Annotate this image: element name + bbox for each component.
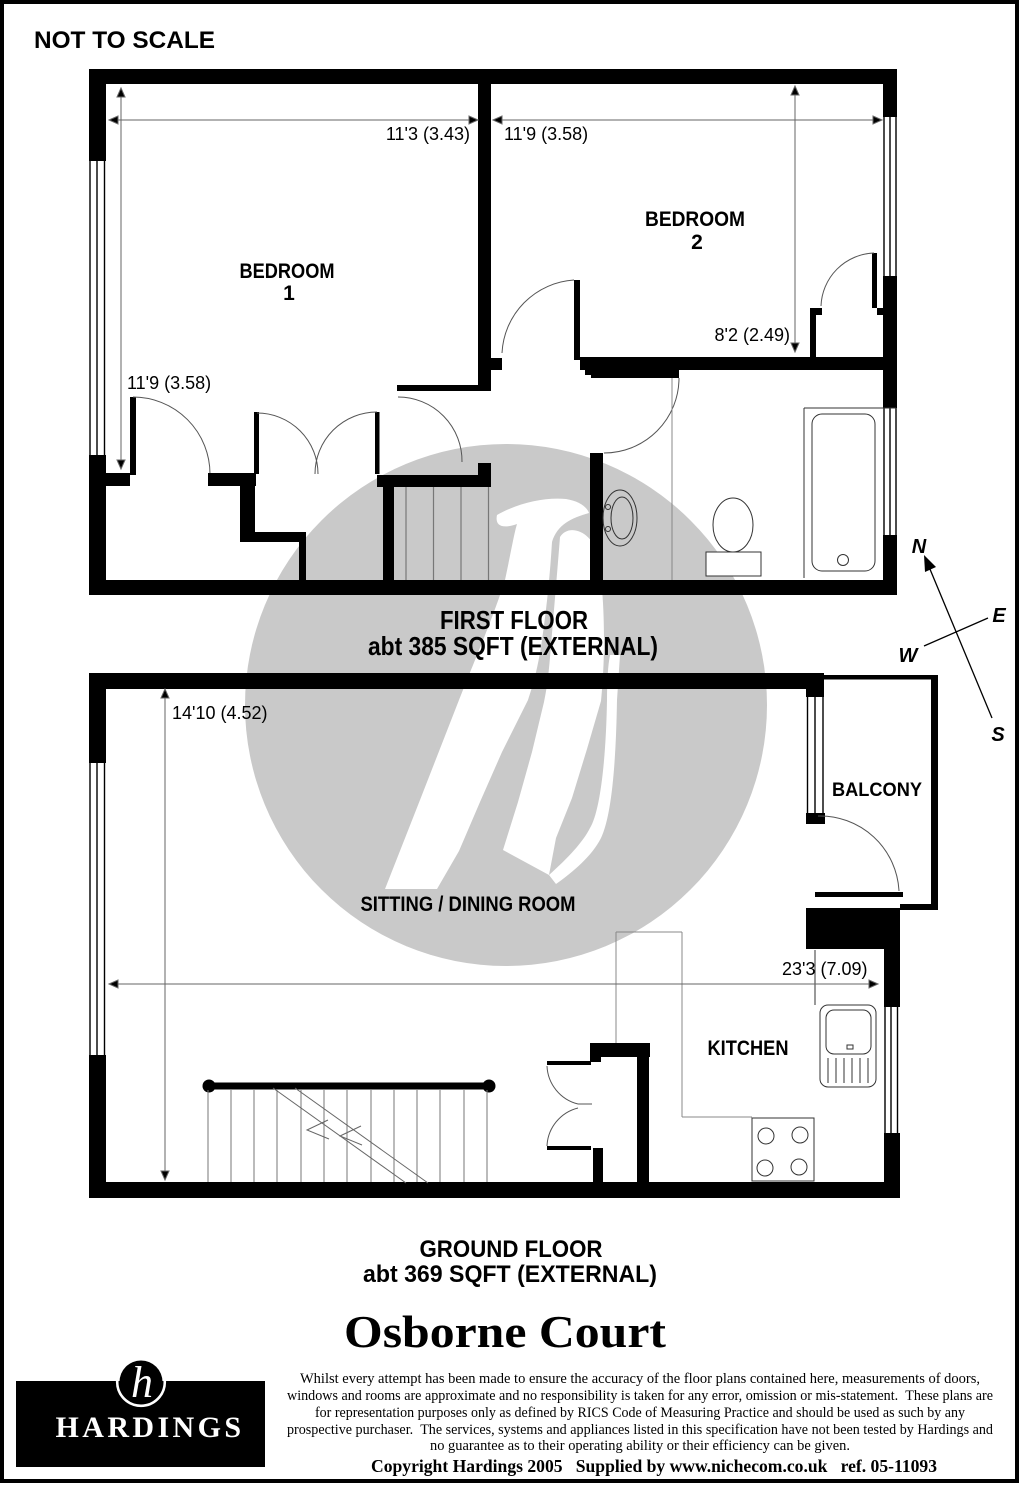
svg-text:N: N <box>912 536 927 558</box>
svg-text:S: S <box>991 724 1005 746</box>
svg-text:2: 2 <box>691 231 703 254</box>
svg-text:prospective purchaser. The se: prospective purchaser. The services, sys… <box>287 1422 994 1438</box>
svg-text:1: 1 <box>283 282 295 305</box>
svg-text:Whilst every attempt has been: Whilst every attempt has been made to en… <box>300 1371 980 1387</box>
svg-text:11'9 (3.58): 11'9 (3.58) <box>127 373 211 393</box>
svg-text:BEDROOM: BEDROOM <box>240 260 335 283</box>
svg-text:BEDROOM: BEDROOM <box>645 208 745 231</box>
svg-text:HARDINGS: HARDINGS <box>56 1411 245 1444</box>
svg-text:windows and rooms are approxim: windows and rooms are approximate and no… <box>287 1388 993 1404</box>
svg-text:Copyright Hardings 2005 Supp: Copyright Hardings 2005 Supplied by www.… <box>371 1456 937 1476</box>
svg-text:no guarantee as to their opera: no guarantee as to their operating abili… <box>430 1438 850 1454</box>
svg-text:NOT TO SCALE: NOT TO SCALE <box>34 27 215 54</box>
svg-text:abt 385 SQFT (EXTERNAL): abt 385 SQFT (EXTERNAL) <box>368 631 658 661</box>
svg-text:BALCONY: BALCONY <box>832 780 922 801</box>
svg-text:Osborne Court: Osborne Court <box>344 1306 667 1357</box>
svg-text:11'9 (3.58): 11'9 (3.58) <box>504 124 588 144</box>
svg-text:GROUND FLOOR: GROUND FLOOR <box>420 1236 603 1263</box>
svg-text:for representation purposes on: for representation purposes only as defi… <box>315 1405 966 1421</box>
svg-text:abt 369 SQFT (EXTERNAL): abt 369 SQFT (EXTERNAL) <box>363 1261 657 1288</box>
svg-text:E: E <box>992 605 1006 627</box>
svg-text:h: h <box>131 1358 153 1407</box>
svg-text:11'3 (3.43): 11'3 (3.43) <box>386 124 470 144</box>
svg-text:14'10 (4.52): 14'10 (4.52) <box>172 703 268 723</box>
svg-text:KITCHEN: KITCHEN <box>708 1037 789 1060</box>
svg-text:23'3 (7.09): 23'3 (7.09) <box>782 959 868 979</box>
svg-text:8'2 (2.49): 8'2 (2.49) <box>715 325 790 345</box>
svg-text:W: W <box>899 645 920 667</box>
svg-text:SITTING / DINING ROOM: SITTING / DINING ROOM <box>361 893 576 916</box>
